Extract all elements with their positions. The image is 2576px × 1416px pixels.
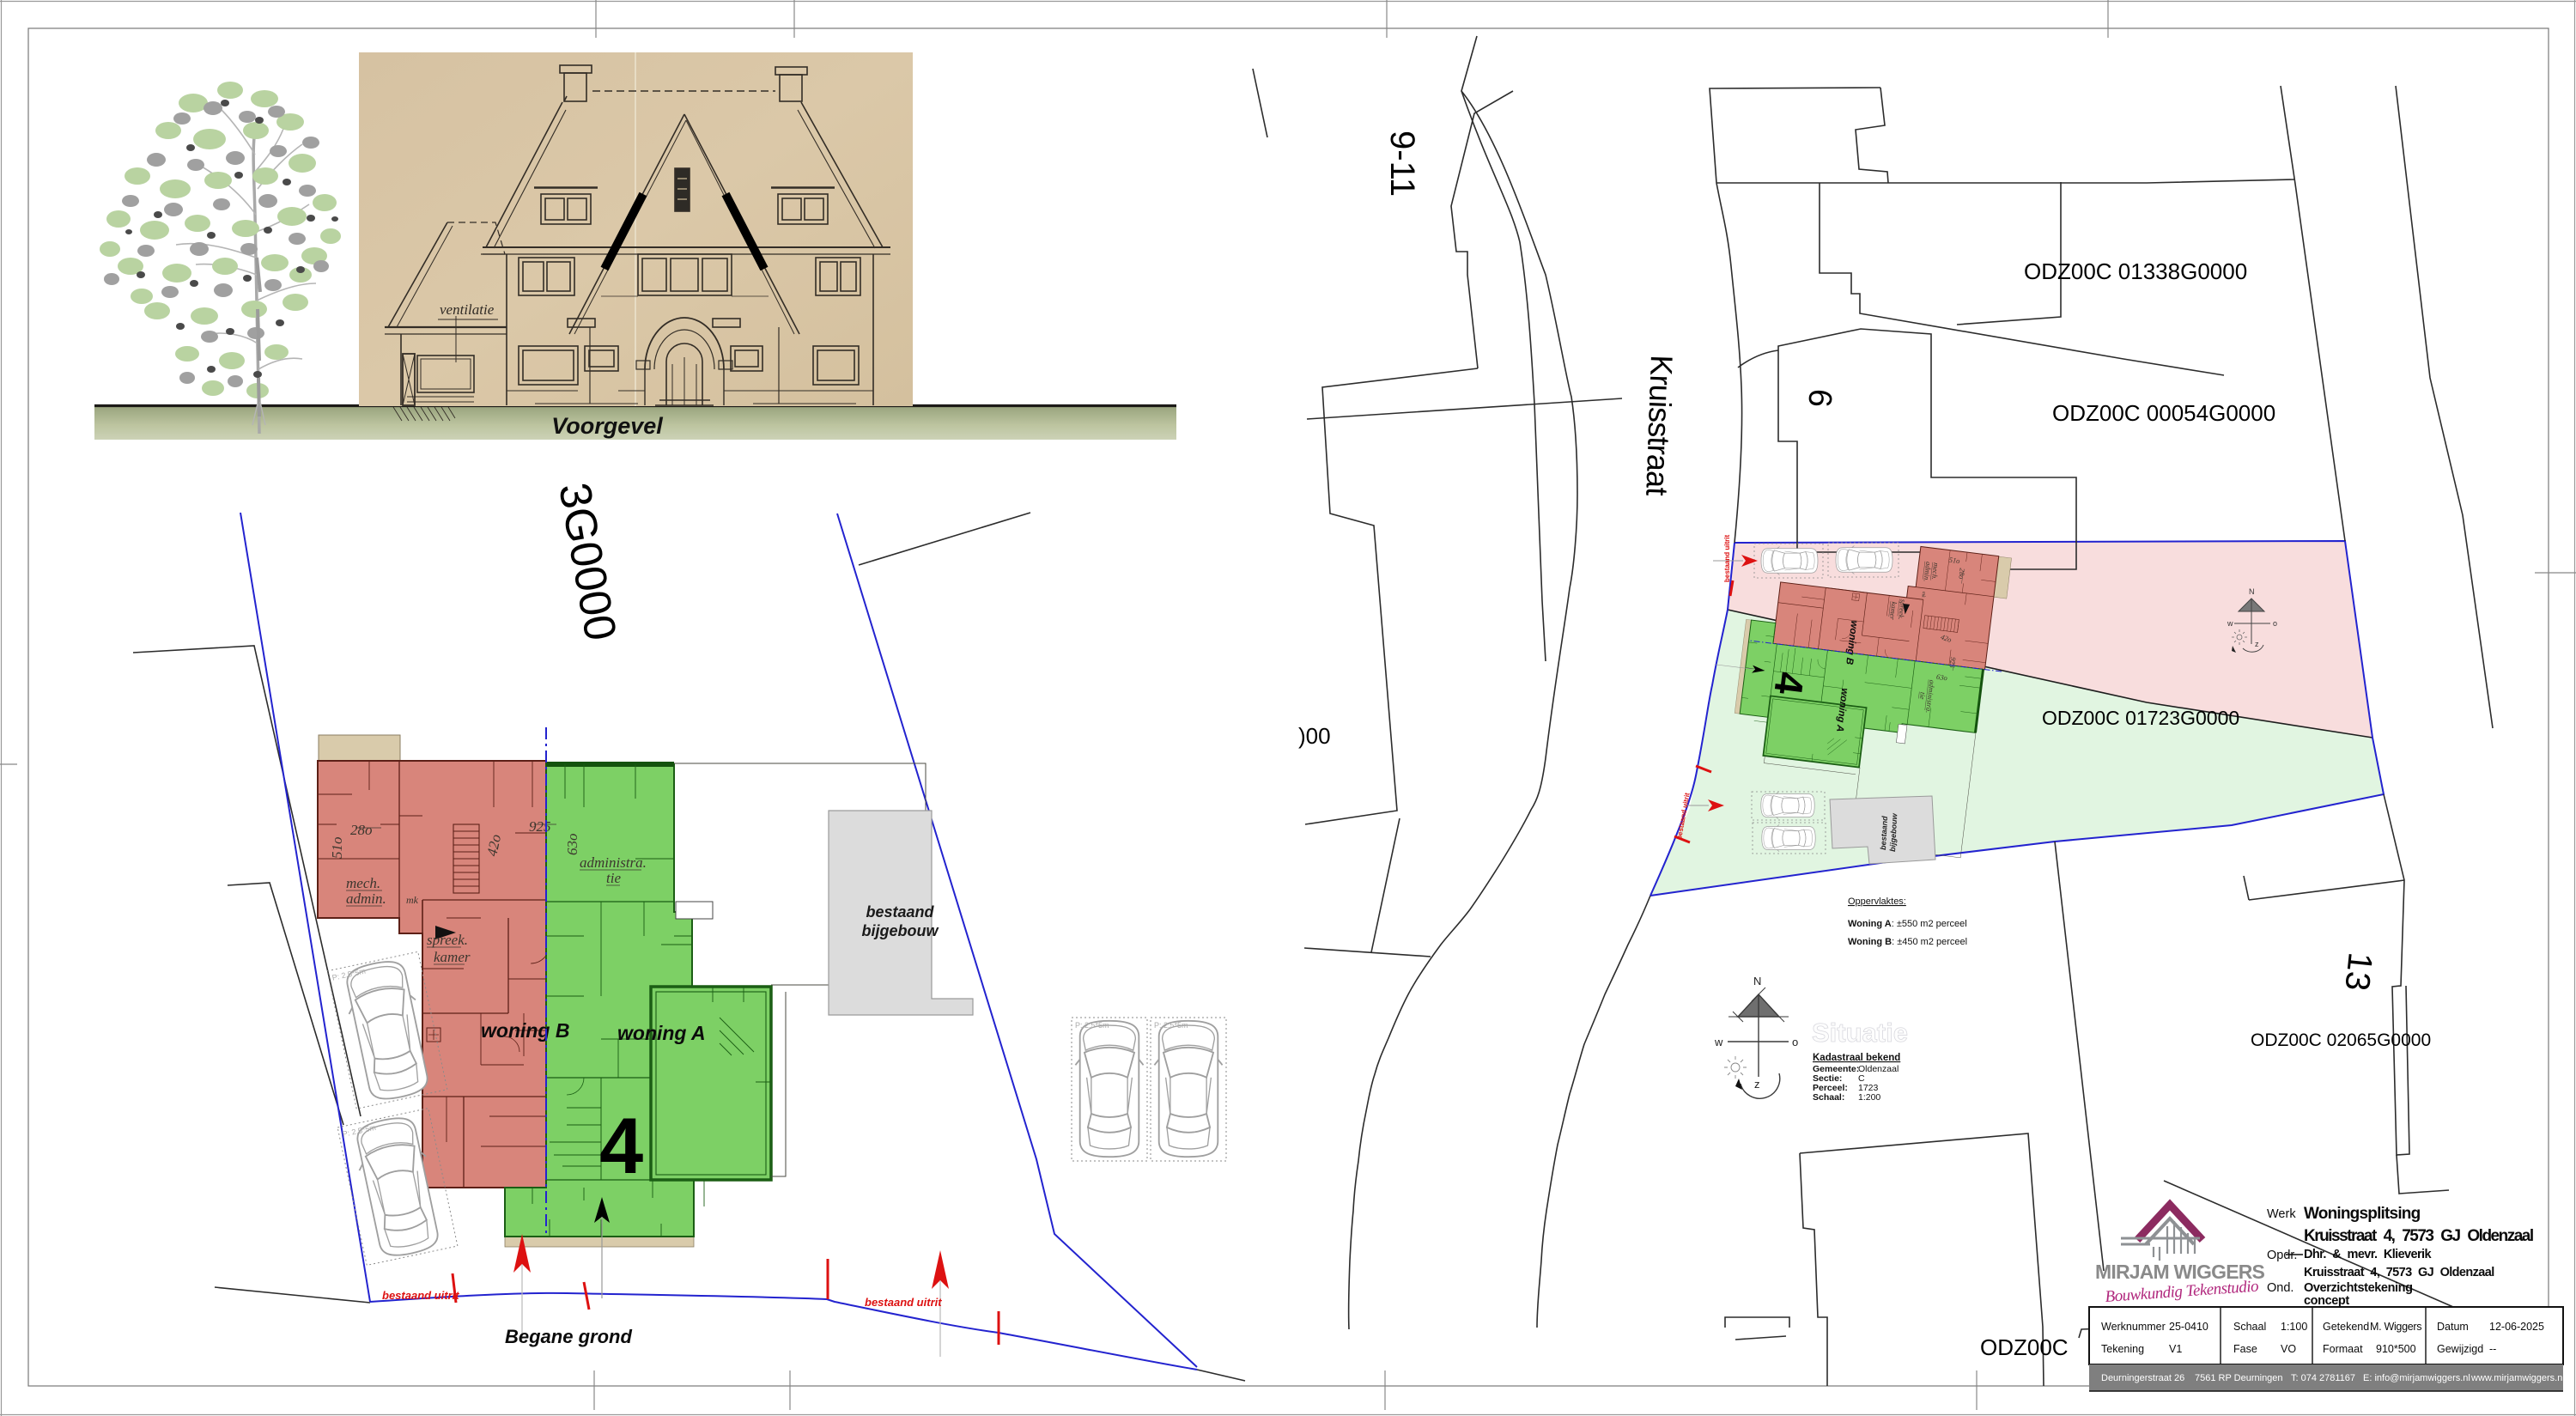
svg-text:ODZ00C 00054G0000: ODZ00C 00054G0000	[2052, 400, 2275, 426]
svg-text:P: 2.5*5m: P: 2.5*5m	[1075, 1021, 1109, 1030]
svg-text:z: z	[2255, 640, 2259, 648]
svg-text:ODZ00C 01338G0000: ODZ00C 01338G0000	[2024, 258, 2247, 284]
svg-text:M. Wiggers: M. Wiggers	[2370, 1321, 2421, 1333]
svg-text:Woning A: ±550 m2 perceel: Woning A: ±550 m2 perceel	[1848, 919, 1967, 929]
svg-text:N: N	[1753, 975, 1761, 988]
svg-text:www.mirjamwiggers.nl: www.mirjamwiggers.nl	[2470, 1373, 2565, 1383]
svg-text:Situatie: Situatie	[1812, 1018, 1908, 1048]
svg-text:Datum: Datum	[2437, 1321, 2469, 1333]
svg-text:Woningsplitsing: Woningsplitsing	[2304, 1205, 2421, 1223]
svg-text:9-11: 9-11	[1383, 131, 1421, 197]
svg-text:--: --	[2489, 1343, 2496, 1355]
svg-text:12-06-2025: 12-06-2025	[2489, 1321, 2544, 1333]
svg-text:Werknummer: Werknummer	[2101, 1321, 2166, 1333]
svg-text:Fase: Fase	[2233, 1343, 2257, 1355]
svg-text:ODZ00C: ODZ00C	[1980, 1334, 2069, 1360]
svg-text:Getekend: Getekend	[2323, 1321, 2369, 1333]
svg-text:Dhr. & mevr. Klieverik: Dhr. & mevr. Klieverik	[2304, 1248, 2432, 1261]
svg-text:V1: V1	[2169, 1343, 2182, 1355]
svg-text:P: 2.5*5m: P: 2.5*5m	[1154, 1021, 1188, 1030]
svg-text:E: info@mirjamwiggers.nl: E: info@mirjamwiggers.nl	[2363, 1373, 2470, 1383]
svg-text:bestaand uitrit: bestaand uitrit	[865, 1296, 942, 1309]
svg-text:Kruisstraat 4, 7573 GJ Oldenza: Kruisstraat 4, 7573 GJ Oldenzaal	[2304, 1266, 2494, 1279]
svg-text:13: 13	[2337, 951, 2379, 993]
svg-text:Werk: Werk	[2267, 1207, 2296, 1221]
svg-text:7561 RP Deurningen: 7561 RP Deurningen	[2195, 1373, 2283, 1383]
svg-text:25-0410: 25-0410	[2169, 1321, 2208, 1333]
svg-text:Schaal:: Schaal:	[1813, 1092, 1844, 1103]
svg-text:w: w	[2227, 619, 2233, 628]
svg-text:bestaand: bestaand	[866, 903, 934, 921]
svg-text:ODZ00C 02065G0000: ODZ00C 02065G0000	[2251, 1030, 2431, 1050]
svg-text:Formaat: Formaat	[2323, 1343, 2363, 1355]
svg-text:Woning B: ±450 m2 perceel: Woning B: ±450 m2 perceel	[1848, 937, 1967, 947]
svg-text:N: N	[2249, 587, 2255, 596]
svg-text:ODZ00C 01723G0000: ODZ00C 01723G0000	[2042, 707, 2239, 729]
svg-text:Kruisstraat: Kruisstraat	[1639, 355, 1680, 496]
svg-text:Deurningerstraat 26: Deurningerstraat 26	[2101, 1373, 2184, 1383]
svg-text:w: w	[1714, 1036, 1723, 1048]
svg-text:bestaand uitrit: bestaand uitrit	[382, 1289, 459, 1302]
svg-text:Begane grond: Begane grond	[505, 1326, 632, 1347]
svg-text:bestaand: bestaand	[1879, 816, 1889, 850]
svg-text:Schaal: Schaal	[2233, 1321, 2266, 1333]
svg-text:z: z	[1754, 1078, 1760, 1091]
svg-text:Voorgevel: Voorgevel	[551, 413, 663, 439]
svg-text:T: 074 2781167: T: 074 2781167	[2291, 1373, 2355, 1383]
svg-text:bestaand uitrit: bestaand uitrit	[1723, 535, 1731, 582]
svg-text:)00: )00	[1298, 723, 1331, 749]
svg-text:1:200: 1:200	[1858, 1092, 1880, 1103]
svg-text:Gewijzigd: Gewijzigd	[2437, 1343, 2483, 1355]
svg-text:o: o	[2273, 619, 2277, 628]
svg-text:concept: concept	[2304, 1294, 2349, 1308]
svg-text:Kruisstraat 4, 7573 GJ Oldenza: Kruisstraat 4, 7573 GJ Oldenzaal	[2304, 1227, 2533, 1245]
svg-text:Tekening: Tekening	[2101, 1343, 2144, 1355]
svg-text:ventilatie: ventilatie	[440, 301, 495, 318]
svg-text:Overzichtstekening: Overzichtstekening	[2304, 1281, 2413, 1295]
svg-text:VO: VO	[2281, 1343, 2296, 1355]
svg-text:Kadastraal bekend: Kadastraal bekend	[1813, 1053, 1900, 1063]
svg-text:Ond.: Ond.	[2267, 1281, 2293, 1295]
svg-text:Oppervlaktes:: Oppervlaktes:	[1848, 896, 1906, 907]
svg-text:o: o	[1792, 1036, 1798, 1048]
svg-text:Opdr.: Opdr.	[2267, 1249, 2297, 1262]
svg-text:910*500: 910*500	[2376, 1343, 2416, 1355]
svg-text:1:100: 1:100	[2281, 1321, 2307, 1333]
svg-text:bijgebouw: bijgebouw	[862, 922, 939, 939]
svg-text:6: 6	[1801, 387, 1838, 409]
